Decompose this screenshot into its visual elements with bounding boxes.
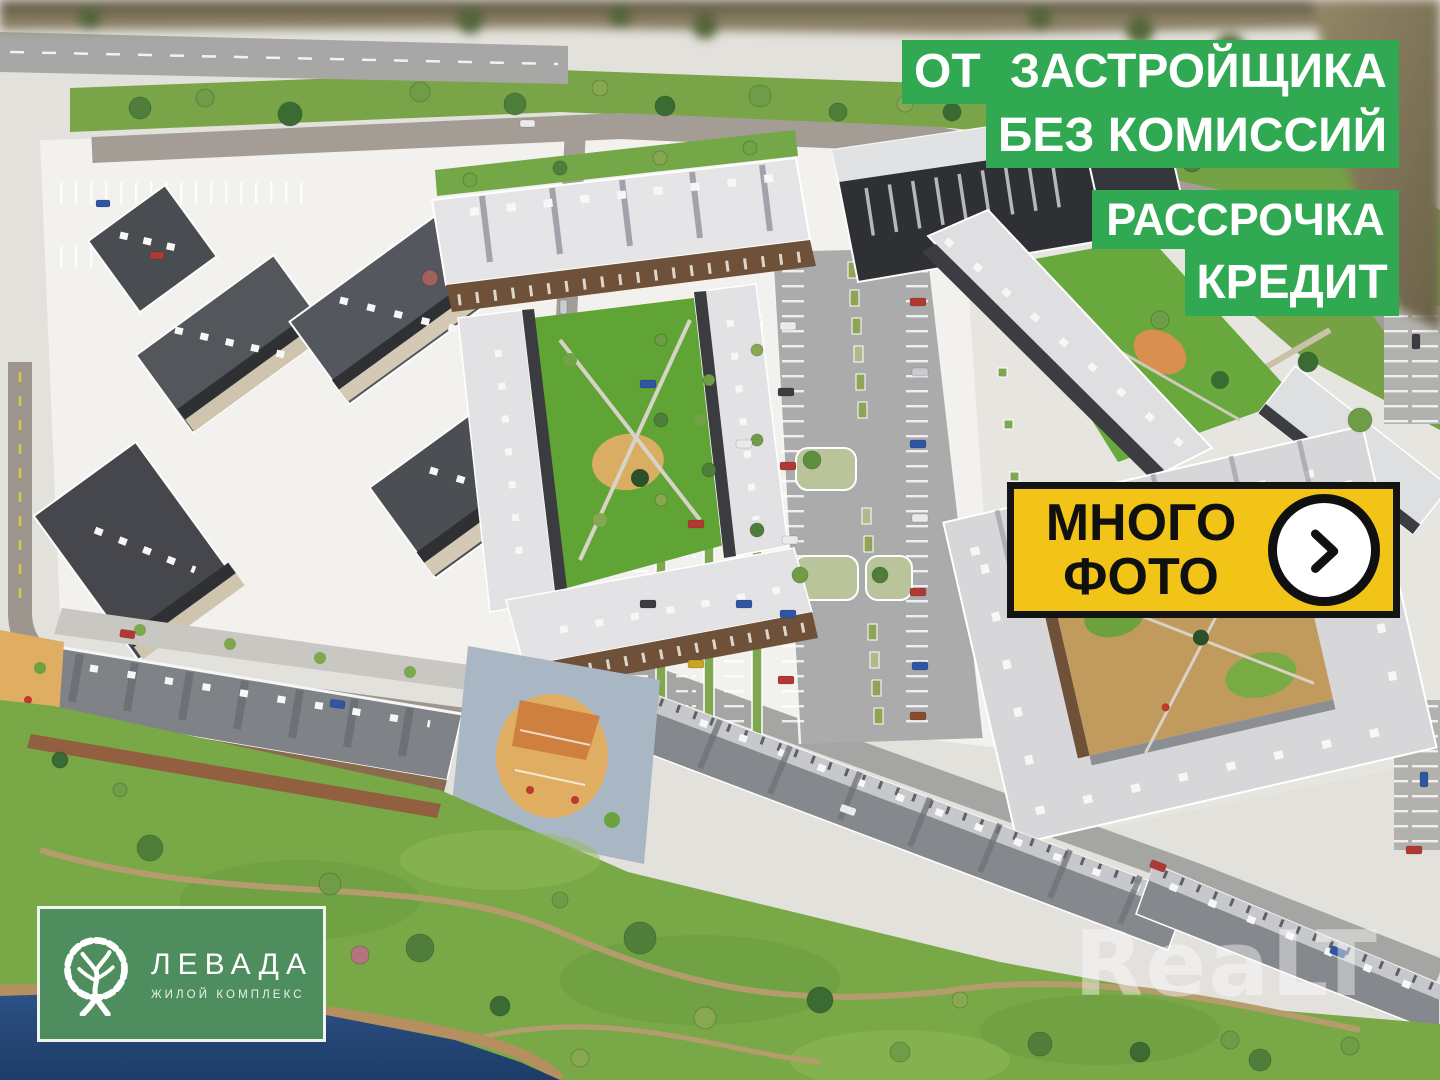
realt-watermark: ReaLT <box>1074 920 1379 1010</box>
promo-line-installments: РАССРОЧКА <box>1092 190 1399 249</box>
logo-subtitle: ЖИЛОЙ КОМПЛЕКС <box>151 989 313 1001</box>
promo-line-no-commission: БЕЗ КОМИССИЙ <box>986 104 1399 168</box>
more-photos-button[interactable]: МНОГО ФОТО <box>1007 482 1400 618</box>
more-photos-label: МНОГО ФОТО <box>1014 496 1268 604</box>
tree-road-icon <box>54 932 138 1016</box>
promo-line-from-developer: ОТ ЗАСТРОЙЩИКА <box>902 40 1399 104</box>
chevron-right-circle-icon <box>1268 494 1380 606</box>
logo-text: ЛЕВАДА ЖИЛОЙ КОМПЛЕКС <box>151 948 313 1001</box>
listing-photo: ОТ ЗАСТРОЙЩИКА БЕЗ КОМИССИЙ РАССРОЧКА КР… <box>0 0 1440 1080</box>
promo-line-credit: КРЕДИТ <box>1185 249 1399 316</box>
logo-title: ЛЕВАДА <box>151 948 313 982</box>
developer-logo-card: ЛЕВАДА ЖИЛОЙ КОМПЛЕКС <box>37 906 326 1042</box>
